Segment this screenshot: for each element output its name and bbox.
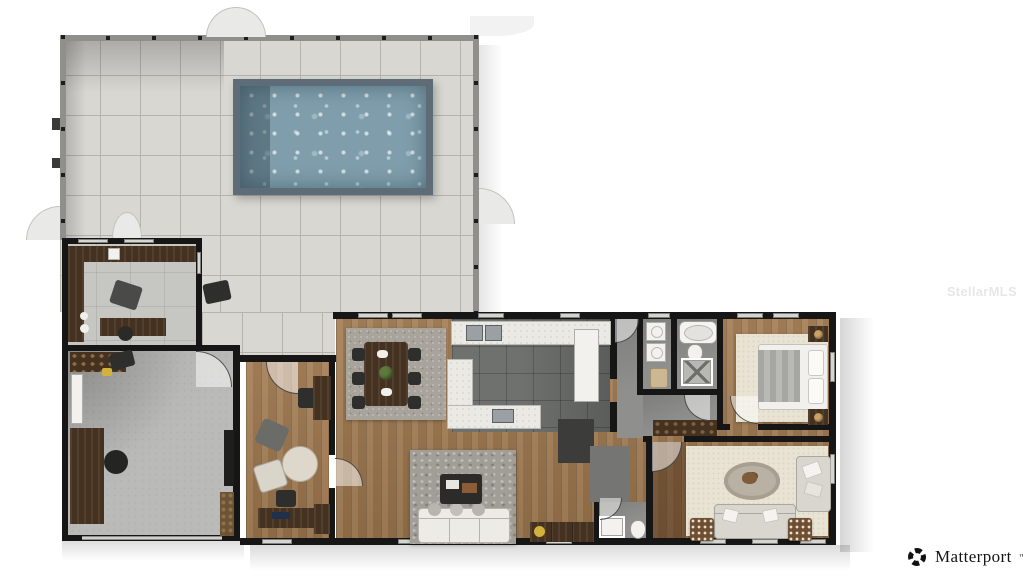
- island-sink: [492, 409, 514, 423]
- window: [737, 313, 763, 318]
- dining-chair: [352, 396, 365, 409]
- family-sofa: [714, 504, 796, 539]
- closet-gray: [590, 446, 630, 502]
- bedroom-wall-bottom: [723, 424, 730, 430]
- bed-pillow: [808, 378, 824, 404]
- workbench: [70, 428, 104, 524]
- dining-chair: [408, 372, 421, 385]
- matterport-wordmark: Matterport: [935, 547, 1012, 567]
- pegboard: [71, 374, 83, 424]
- chaise-pillow: [804, 481, 824, 498]
- shadow: [470, 16, 534, 36]
- toilet: [630, 520, 646, 539]
- pool-equipment: [52, 118, 60, 130]
- window: [752, 539, 778, 544]
- nightstand: [808, 326, 828, 342]
- lanai-window: [124, 239, 154, 243]
- bed-blanket: [758, 350, 800, 402]
- shower: [681, 358, 713, 386]
- garage-cabinet: [224, 430, 234, 486]
- dining-dish: [377, 350, 388, 358]
- tub-basin: [684, 325, 713, 341]
- screen-wall-ticks: [61, 35, 65, 240]
- garage-item-yellow: [102, 368, 112, 376]
- window: [830, 352, 835, 382]
- pool-tanning-ledge: [240, 86, 270, 188]
- exterior-door-arc: [26, 206, 60, 240]
- swimming-pool: [233, 79, 433, 195]
- bar-bowl: [80, 312, 88, 320]
- den-side-table: [314, 504, 330, 534]
- console-line: [572, 522, 573, 542]
- den-chair: [276, 490, 296, 507]
- window: [478, 313, 504, 318]
- sofa-round-pillow: [428, 503, 441, 516]
- sofa-pillow: [762, 508, 779, 524]
- centerpiece-plant: [379, 366, 393, 380]
- screen-wall-ticks: [60, 36, 479, 40]
- lanai-door: [197, 252, 201, 274]
- hall-closet-shelf: [653, 420, 717, 436]
- bed-pillow: [808, 350, 824, 376]
- window: [773, 313, 799, 318]
- dining-chair: [408, 396, 421, 409]
- matterport-logo: Matterport™: [906, 546, 1023, 568]
- matterport-icon: [906, 546, 928, 568]
- lanai-window: [78, 239, 108, 243]
- outdoor-kitchen-counter-top: [68, 246, 196, 262]
- tray: [446, 480, 459, 489]
- garage-plants: [220, 492, 234, 536]
- chaise-pillow: [801, 460, 823, 479]
- bath-wall-bottom: [637, 389, 723, 395]
- dining-dish: [381, 388, 392, 396]
- book: [462, 483, 477, 493]
- bar-stool: [118, 326, 133, 341]
- shadow: [250, 545, 850, 571]
- window: [560, 313, 580, 318]
- shadow: [62, 541, 244, 561]
- garage-door: [82, 536, 222, 540]
- bedroom-wall-left: [717, 319, 723, 430]
- sofa-cushion-line: [449, 518, 450, 542]
- lamp: [814, 330, 823, 339]
- den-wall-top: [240, 355, 336, 362]
- dryer-drum: [651, 347, 663, 359]
- laundry-bath-wall: [671, 319, 677, 395]
- sofa-cushion-line: [479, 518, 480, 542]
- pool-equipment: [52, 158, 60, 168]
- dining-chair: [352, 348, 365, 361]
- dining-chair: [408, 348, 421, 361]
- coffee-table: [440, 474, 482, 504]
- garage-den-wall: [233, 345, 240, 541]
- closet-dark: [558, 419, 594, 463]
- washer: [646, 322, 666, 341]
- roof-overhang-shadow: [64, 41, 224, 93]
- decor-sphere: [534, 526, 545, 537]
- coffee-maker: [108, 248, 120, 260]
- nightstand: [808, 409, 828, 425]
- garage-wall-left: [62, 345, 68, 541]
- bathtub: [679, 321, 717, 344]
- floorplan-image: StellarMLS Matterport™: [0, 0, 1023, 584]
- roof-overhang-shadow: [64, 41, 86, 241]
- cooktop: [485, 325, 502, 341]
- cooktop: [466, 325, 483, 341]
- dog: [742, 472, 757, 484]
- shadow: [479, 45, 503, 313]
- sofa-round-pillow: [450, 503, 463, 516]
- ottoman: [788, 518, 812, 541]
- window: [358, 313, 388, 318]
- lamp: [814, 413, 823, 422]
- refrigerator: [574, 329, 599, 402]
- sofa-round-pillow: [472, 503, 485, 516]
- family-wall-top: [684, 436, 836, 442]
- garage-wall-top: [62, 345, 240, 351]
- desk-chair: [104, 450, 128, 474]
- window: [392, 313, 422, 318]
- shadow: [840, 318, 874, 552]
- dining-chair: [352, 372, 365, 385]
- screen-wall-ticks: [474, 35, 478, 314]
- sofa-cushion-line: [419, 518, 509, 519]
- sofa-pillow: [722, 507, 740, 523]
- den-ottoman: [282, 446, 318, 482]
- kitchen-wall-right: [610, 402, 617, 432]
- trademark-symbol: ™: [1019, 554, 1023, 561]
- laundry-wall-left: [637, 319, 643, 395]
- ottoman: [690, 518, 714, 541]
- den-console: [313, 376, 331, 420]
- window: [262, 539, 292, 544]
- chaise-lounge: [796, 456, 831, 512]
- washer-drum: [651, 326, 663, 338]
- den-monitor: [272, 512, 290, 519]
- french-door-arc: [206, 7, 236, 37]
- dryer: [646, 343, 666, 362]
- french-door-arc: [236, 7, 266, 37]
- lanai-bar: [100, 318, 166, 336]
- laundry-basket: [650, 368, 668, 388]
- bar-bowl: [80, 324, 89, 333]
- watermark: StellarMLS: [947, 284, 1017, 299]
- screen-door-arc: [479, 188, 515, 224]
- console-line: [551, 522, 552, 542]
- window: [648, 313, 670, 318]
